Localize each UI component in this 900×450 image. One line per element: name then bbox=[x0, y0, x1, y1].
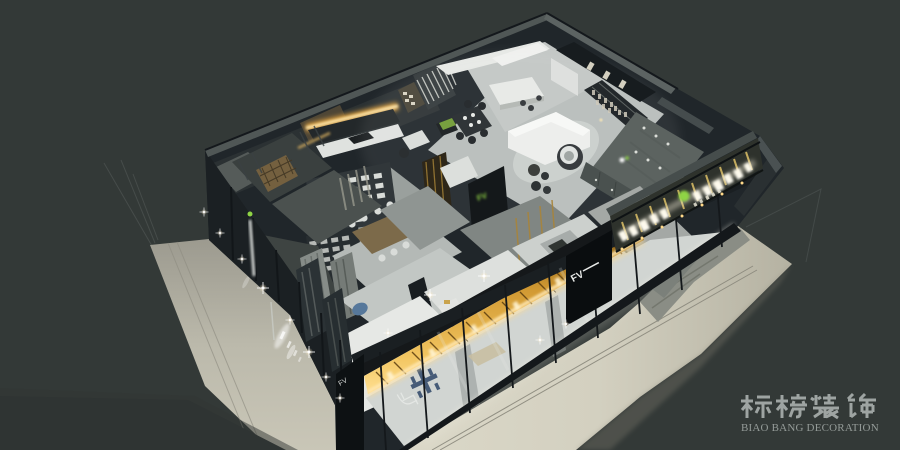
svg-text:BIAO BANG DECORATION: BIAO BANG DECORATION bbox=[741, 422, 879, 434]
